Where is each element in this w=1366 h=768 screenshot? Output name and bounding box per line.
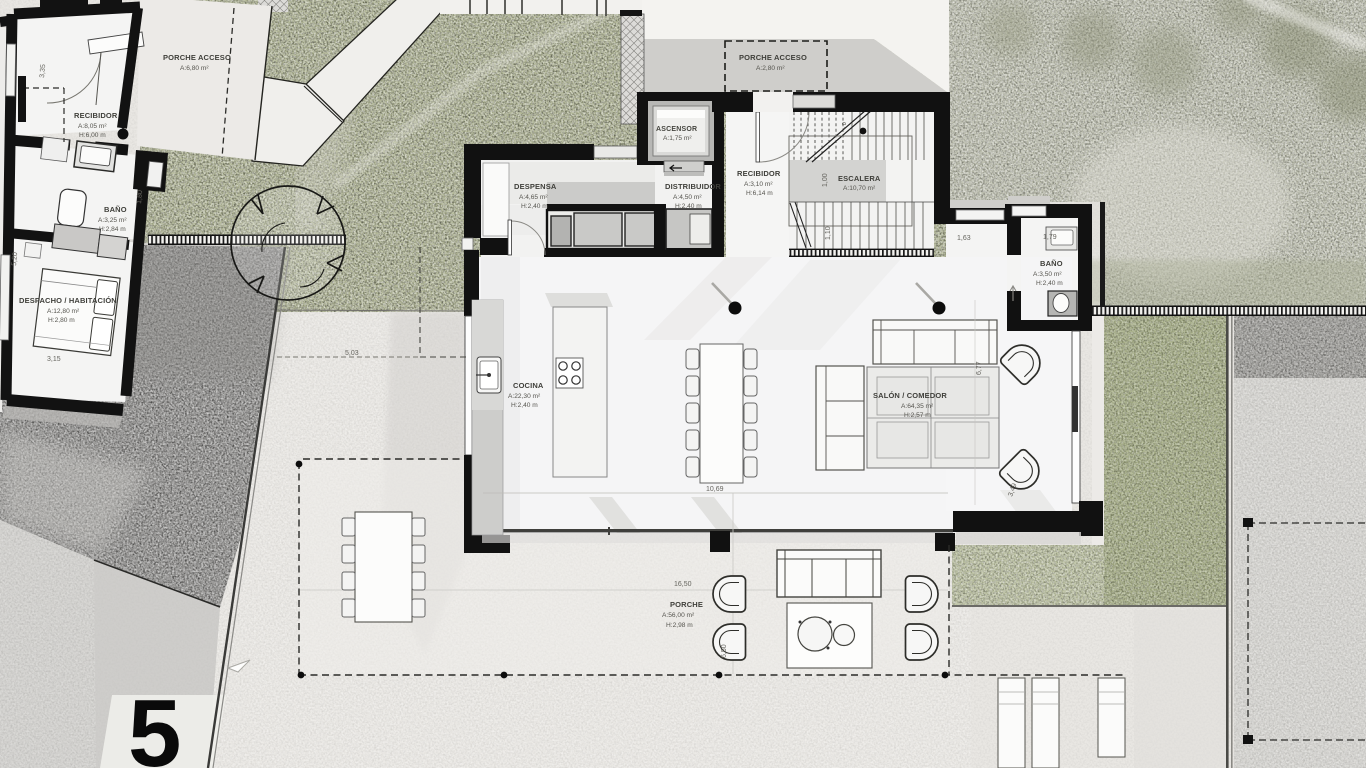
- svg-text:H:6,14 m: H:6,14 m: [746, 190, 773, 197]
- svg-text:RECIBIDOR: RECIBIDOR: [74, 111, 118, 120]
- svg-text:PORCHE: PORCHE: [670, 600, 703, 609]
- svg-text:H:2,40 m: H:2,40 m: [1036, 280, 1063, 287]
- svg-text:+ 0: + 0: [842, 122, 848, 130]
- svg-text:A:6,80 m²: A:6,80 m²: [180, 65, 209, 72]
- svg-text:A:10,70 m²: A:10,70 m²: [843, 185, 876, 192]
- svg-text:A:56,00 m²: A:56,00 m²: [662, 612, 695, 619]
- svg-text:3,15: 3,15: [47, 356, 61, 363]
- svg-text:SALÓN / COMEDOR: SALÓN / COMEDOR: [873, 391, 947, 400]
- svg-text:A:3,50 m²: A:3,50 m²: [1033, 271, 1062, 278]
- svg-text:A:3,10 m²: A:3,10 m²: [744, 181, 773, 188]
- svg-text:RECIBIDOR: RECIBIDOR: [737, 169, 781, 178]
- svg-text:5: 5: [128, 680, 181, 768]
- svg-text:1,10: 1,10: [825, 226, 832, 240]
- svg-text:H:2,80 m: H:2,80 m: [48, 317, 75, 324]
- svg-text:6,50: 6,50: [721, 644, 728, 658]
- svg-text:5,20: 5,20: [11, 252, 19, 266]
- svg-text:COCINA: COCINA: [513, 381, 544, 390]
- svg-text:1,80: 1,80: [136, 190, 144, 204]
- svg-text:A:22,30 m²: A:22,30 m²: [508, 393, 541, 400]
- svg-text:H:2,40 m: H:2,40 m: [511, 402, 538, 409]
- svg-text:DESPENSA: DESPENSA: [514, 182, 557, 191]
- svg-text:5,03: 5,03: [345, 350, 359, 357]
- svg-text:A:2,80 m²: A:2,80 m²: [756, 65, 785, 72]
- svg-text:H:2,40 m: H:2,40 m: [675, 203, 702, 210]
- svg-text:10,69: 10,69: [706, 486, 724, 493]
- svg-text:H:2,84 m: H:2,84 m: [99, 226, 126, 233]
- svg-text:H:6,00 m: H:6,00 m: [79, 132, 106, 139]
- svg-text:PORCHE ACCESO: PORCHE ACCESO: [739, 53, 807, 62]
- svg-text:H:2,98 m: H:2,98 m: [666, 622, 693, 629]
- svg-text:A:1,75 m²: A:1,75 m²: [663, 135, 692, 142]
- svg-text:ASCENSOR: ASCENSOR: [656, 126, 697, 133]
- svg-text:H:2,57 m: H:2,57 m: [904, 412, 931, 419]
- svg-text:A:3,25 m²: A:3,25 m²: [98, 217, 127, 224]
- svg-text:6,77: 6,77: [976, 361, 983, 375]
- svg-text:3,35: 3,35: [39, 64, 47, 78]
- svg-text:1,00: 1,00: [822, 173, 829, 187]
- svg-text:BAÑO: BAÑO: [104, 205, 127, 214]
- svg-text:A:12,80 m²: A:12,80 m²: [47, 308, 80, 315]
- svg-text:A:4,50 m²: A:4,50 m²: [673, 194, 702, 201]
- svg-text:A:64,35 m²: A:64,35 m²: [901, 403, 934, 410]
- svg-text:16,50: 16,50: [674, 581, 692, 588]
- svg-text:H:2,40 m: H:2,40 m: [521, 203, 548, 210]
- svg-text:1,79: 1,79: [1043, 234, 1057, 241]
- svg-text:ESCALERA: ESCALERA: [838, 174, 881, 183]
- svg-text:1,63: 1,63: [957, 235, 971, 242]
- svg-text:A:4,65 m²: A:4,65 m²: [519, 194, 548, 201]
- svg-text:BAÑO: BAÑO: [1040, 259, 1063, 268]
- svg-text:DESPACHO / HABITACIÓN: DESPACHO / HABITACIÓN: [19, 296, 117, 305]
- svg-text:PORCHE ACCESO: PORCHE ACCESO: [163, 53, 231, 62]
- svg-text:A:8,05 m²: A:8,05 m²: [78, 123, 107, 130]
- svg-text:DISTRIBUIDOR: DISTRIBUIDOR: [665, 182, 721, 191]
